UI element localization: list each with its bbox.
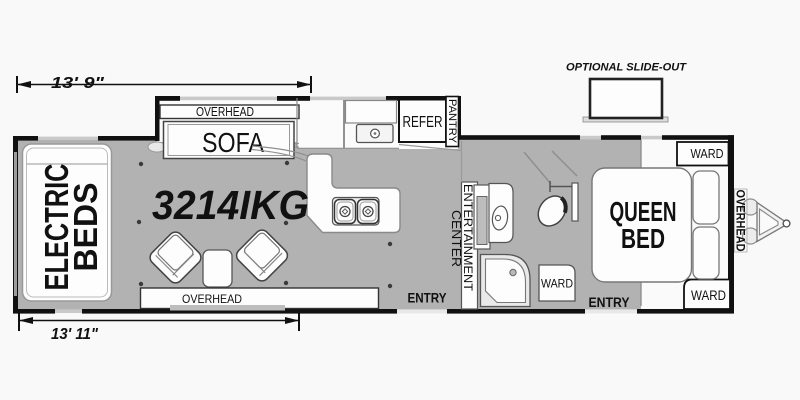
svg-text:BED: BED [621, 223, 665, 254]
svg-text:BEDS: BEDS [67, 183, 104, 272]
svg-text:OVERHEAD: OVERHEAD [196, 105, 254, 119]
svg-text:ENTRY: ENTRY [589, 295, 630, 310]
svg-text:OPTIONAL SLIDE-OUT: OPTIONAL SLIDE-OUT [566, 62, 687, 74]
svg-text:OVERHEAD: OVERHEAD [182, 292, 242, 306]
svg-text:WARD: WARD [541, 277, 573, 291]
svg-text:CENTER: CENTER [449, 210, 463, 267]
svg-text:SOFA: SOFA [202, 127, 264, 158]
svg-text:WARD: WARD [691, 147, 724, 161]
svg-text:REFER: REFER [403, 114, 443, 131]
svg-text:13' 11": 13' 11" [51, 326, 98, 343]
svg-text:13' 9": 13' 9" [51, 75, 105, 92]
svg-text:ENTRY: ENTRY [408, 291, 447, 306]
svg-text:WARD: WARD [691, 287, 726, 303]
svg-text:PANTRY: PANTRY [446, 99, 458, 144]
svg-text:OVERHEAD: OVERHEAD [734, 190, 748, 252]
